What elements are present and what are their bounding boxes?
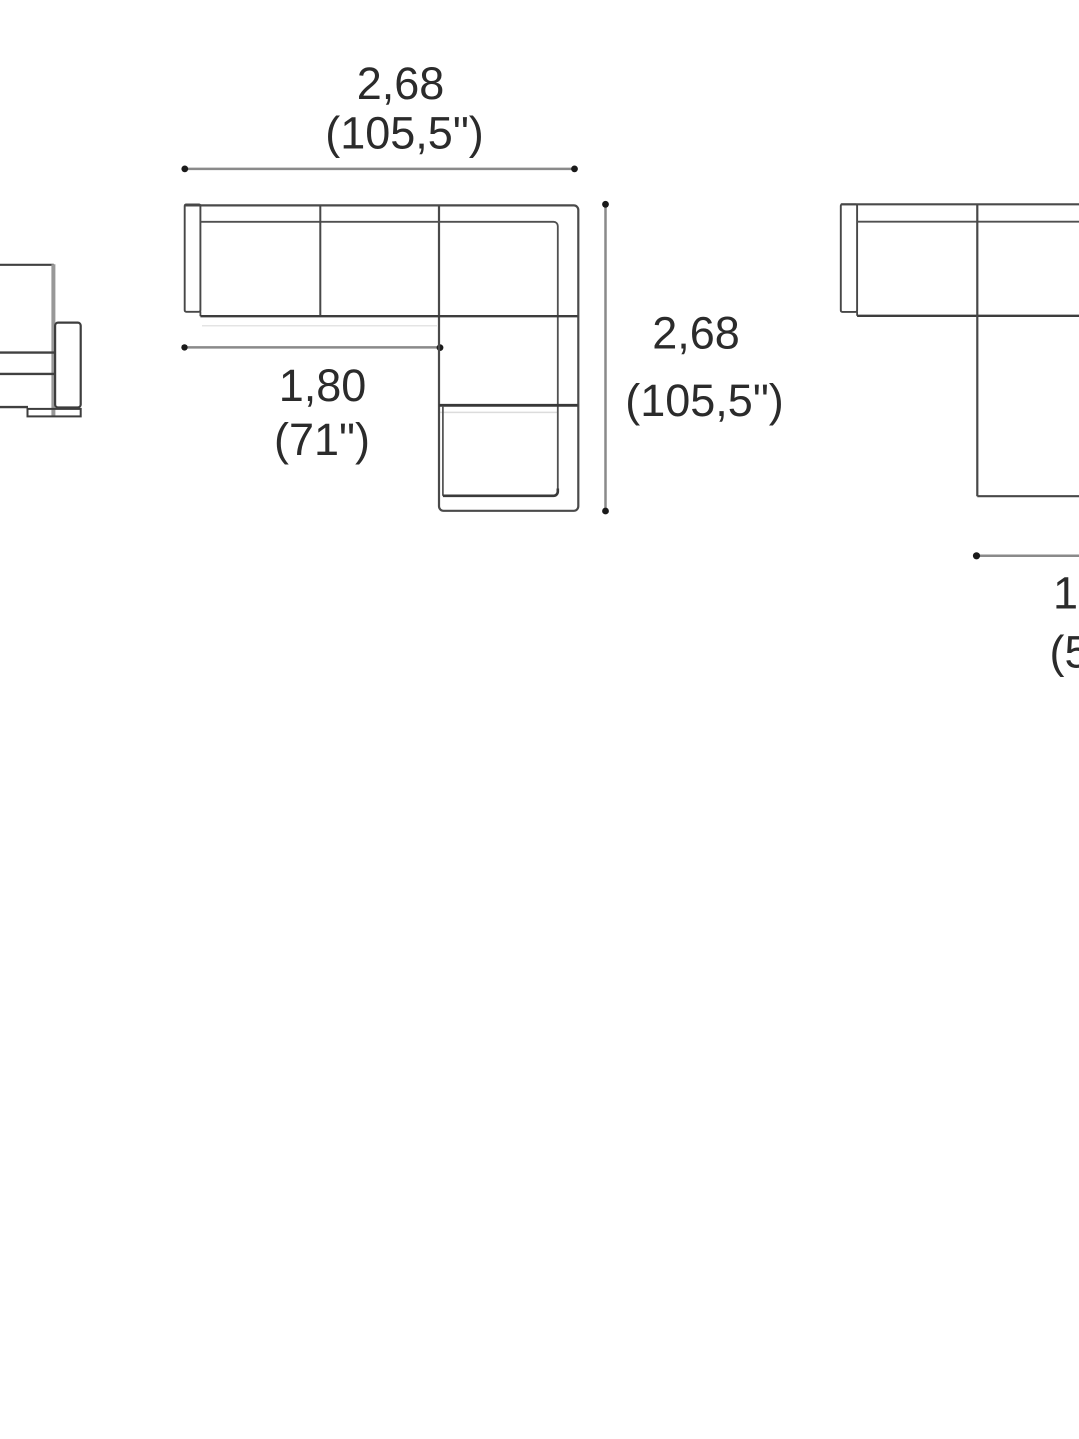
svg-text:2,68: 2,68 bbox=[652, 308, 740, 359]
svg-text:1,: 1, bbox=[1053, 568, 1079, 619]
svg-text:(105,5"): (105,5") bbox=[625, 375, 784, 426]
svg-text:(59: (59 bbox=[1050, 627, 1079, 678]
svg-text:(105,5"): (105,5") bbox=[325, 108, 484, 159]
svg-text:(71"): (71") bbox=[274, 414, 370, 465]
svg-text:1,80: 1,80 bbox=[279, 360, 367, 411]
svg-text:2,68: 2,68 bbox=[357, 58, 445, 109]
